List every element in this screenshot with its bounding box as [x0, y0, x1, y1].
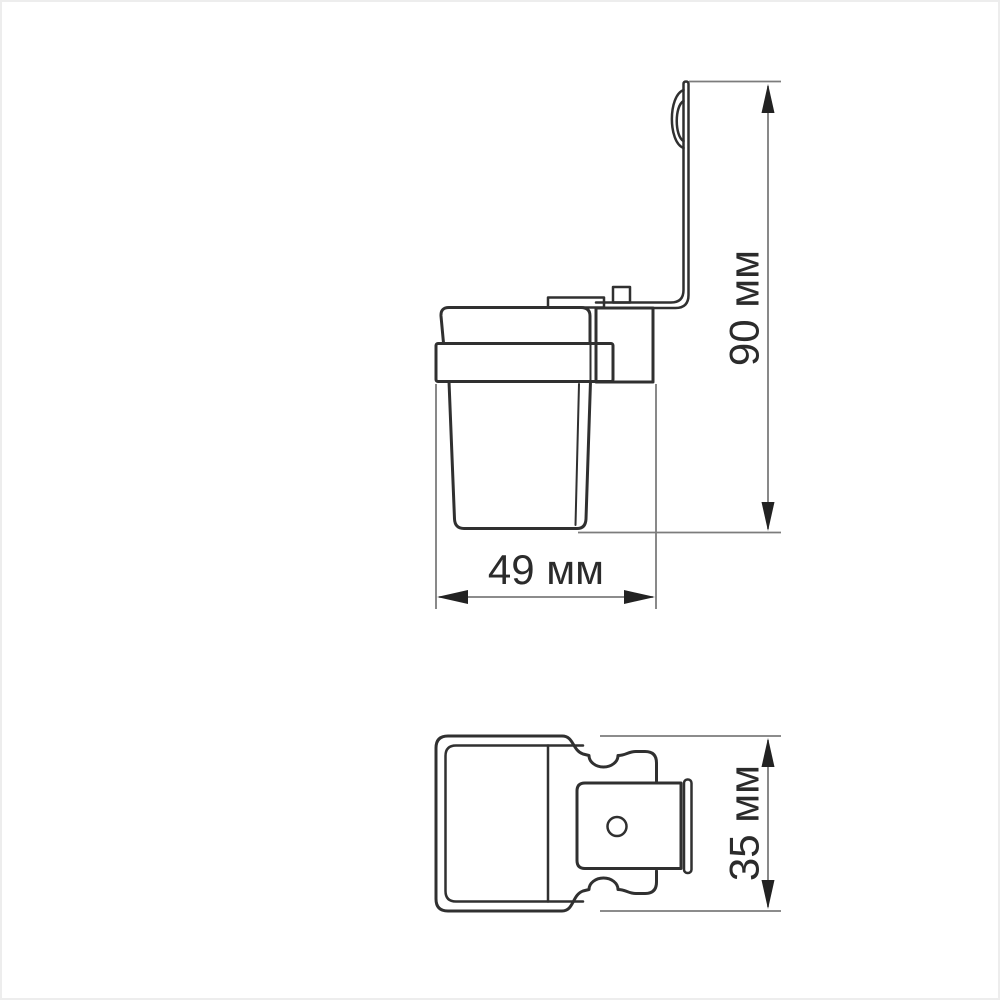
bracket-clip [672, 90, 684, 148]
top-knob [613, 287, 630, 303]
sensor-cap [441, 308, 590, 344]
mounting-bracket [596, 82, 689, 309]
bracket-tab-edge [684, 780, 692, 874]
arrowhead-down [762, 880, 775, 909]
arrowhead-down [762, 502, 775, 531]
body-inner-line [446, 746, 584, 902]
product-dimension-diagram: 90 мм 49 мм [0, 0, 1000, 1000]
sensor-body [449, 382, 591, 529]
top-view [436, 736, 692, 911]
collar-band [436, 344, 613, 382]
body-outline [436, 736, 657, 911]
side-view [436, 82, 689, 529]
dimension-drawing-svg: 90 мм 49 мм [0, 0, 1000, 1000]
arrowhead-left [437, 590, 468, 604]
arrowhead-up [762, 84, 775, 113]
dimension-width: 49 мм [436, 384, 656, 609]
dimension-label-width: 49 мм [488, 546, 604, 593]
dimension-label-height: 90 мм [721, 250, 768, 366]
arrowhead-right [624, 590, 655, 604]
screw-hole [608, 817, 627, 836]
arrowhead-up [762, 738, 775, 767]
body-inner-edge [576, 384, 580, 525]
bracket-plate [577, 783, 681, 869]
dimension-label-depth: 35 мм [721, 765, 768, 881]
